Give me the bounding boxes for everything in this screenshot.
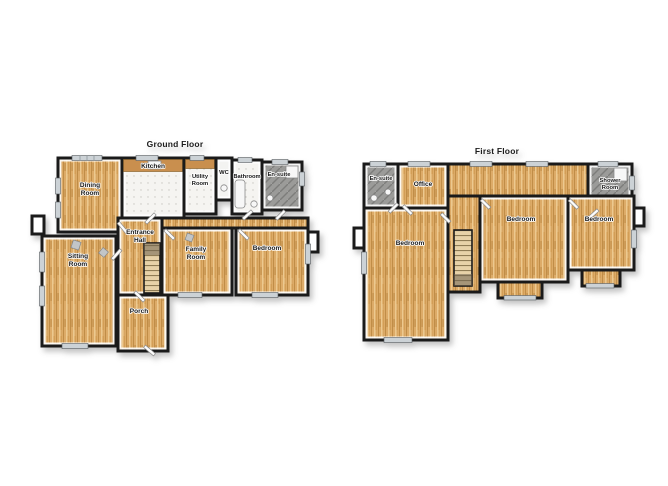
- window: [504, 296, 536, 301]
- window: [408, 162, 430, 167]
- window: [470, 162, 492, 167]
- window: [526, 162, 548, 167]
- ff-shower-room-label: Shower: [600, 178, 622, 184]
- gf-sitting-room-label: Sitting: [68, 253, 88, 260]
- gf-porch: [118, 295, 168, 351]
- gf-entrance-hall-label: Entrance: [126, 229, 154, 236]
- window: [62, 344, 88, 349]
- gf-dining-room-label: Dining: [80, 182, 100, 189]
- gf-utility-room-label: Utility: [192, 174, 209, 180]
- ff-bedroom-middle: [480, 196, 568, 298]
- gf-en-suite: [262, 162, 302, 210]
- window: [370, 162, 386, 167]
- gf-entrance-hall-label: Hall: [134, 237, 146, 244]
- gf-family-room-label: Family: [186, 246, 207, 253]
- stairs-icon: [454, 230, 472, 286]
- window: [40, 252, 45, 272]
- chimney-bump: [32, 216, 44, 234]
- ff-en-suite-label: En-suite: [370, 176, 394, 182]
- toilet-icon: [221, 185, 227, 191]
- window: [238, 158, 252, 163]
- sink-icon: [385, 189, 391, 195]
- floorplan-image: Ground Floor: [0, 0, 668, 486]
- gf-bedroom-label: Bedroom: [253, 245, 282, 252]
- window: [598, 162, 618, 167]
- window: [190, 156, 204, 161]
- utility-counter: [186, 160, 215, 169]
- window: [632, 230, 637, 248]
- ground-floor-plan: Ground Floor: [32, 139, 318, 356]
- ff-bedroom-right-label: Bedroom: [585, 216, 614, 223]
- window: [586, 284, 614, 289]
- window: [630, 176, 635, 190]
- window: [136, 156, 158, 161]
- stairs-icon: [144, 243, 160, 293]
- sink-icon: [267, 195, 273, 201]
- patio-door: [72, 156, 102, 161]
- window: [272, 160, 288, 165]
- ff-bedroom-left: [364, 208, 448, 340]
- window: [384, 338, 412, 343]
- ff-en-suite: [364, 164, 398, 208]
- ff-office-label: Office: [414, 181, 433, 188]
- window: [178, 293, 202, 298]
- gf-sitting-room-label: Room: [69, 261, 88, 268]
- gf-utility-room-label: Room: [192, 181, 208, 187]
- window: [56, 178, 61, 194]
- gf-en-suite-label: En-suite: [268, 172, 292, 178]
- window: [306, 244, 311, 264]
- window: [252, 293, 278, 298]
- toilet-icon: [371, 195, 377, 201]
- gf-dining-room-label: Room: [81, 190, 100, 197]
- ground-floor-title: Ground Floor: [147, 139, 204, 149]
- toilet-icon: [251, 201, 257, 207]
- ff-bedroom-middle-label: Bedroom: [507, 216, 536, 223]
- gf-porch-label: Porch: [130, 308, 148, 315]
- ff-shower-room-label: Room: [602, 185, 618, 191]
- first-floor-plan: First Floor: [354, 146, 644, 343]
- gf-wc-label: WC: [219, 170, 229, 176]
- first-floor-title: First Floor: [475, 146, 520, 156]
- window: [40, 286, 45, 306]
- gf-wc: [216, 158, 232, 200]
- gf-bathroom-label: Bathroom: [233, 174, 260, 180]
- window: [362, 252, 367, 274]
- window: [56, 202, 61, 218]
- window: [300, 172, 305, 186]
- gf-bathroom: [232, 160, 262, 214]
- gf-kitchen-label: Kitchen: [141, 163, 165, 170]
- ff-bedroom-left-label: Bedroom: [396, 240, 425, 247]
- gf-family-room-label: Room: [187, 254, 206, 261]
- ff-bedroom-right: [568, 196, 634, 286]
- bath-icon: [235, 180, 245, 208]
